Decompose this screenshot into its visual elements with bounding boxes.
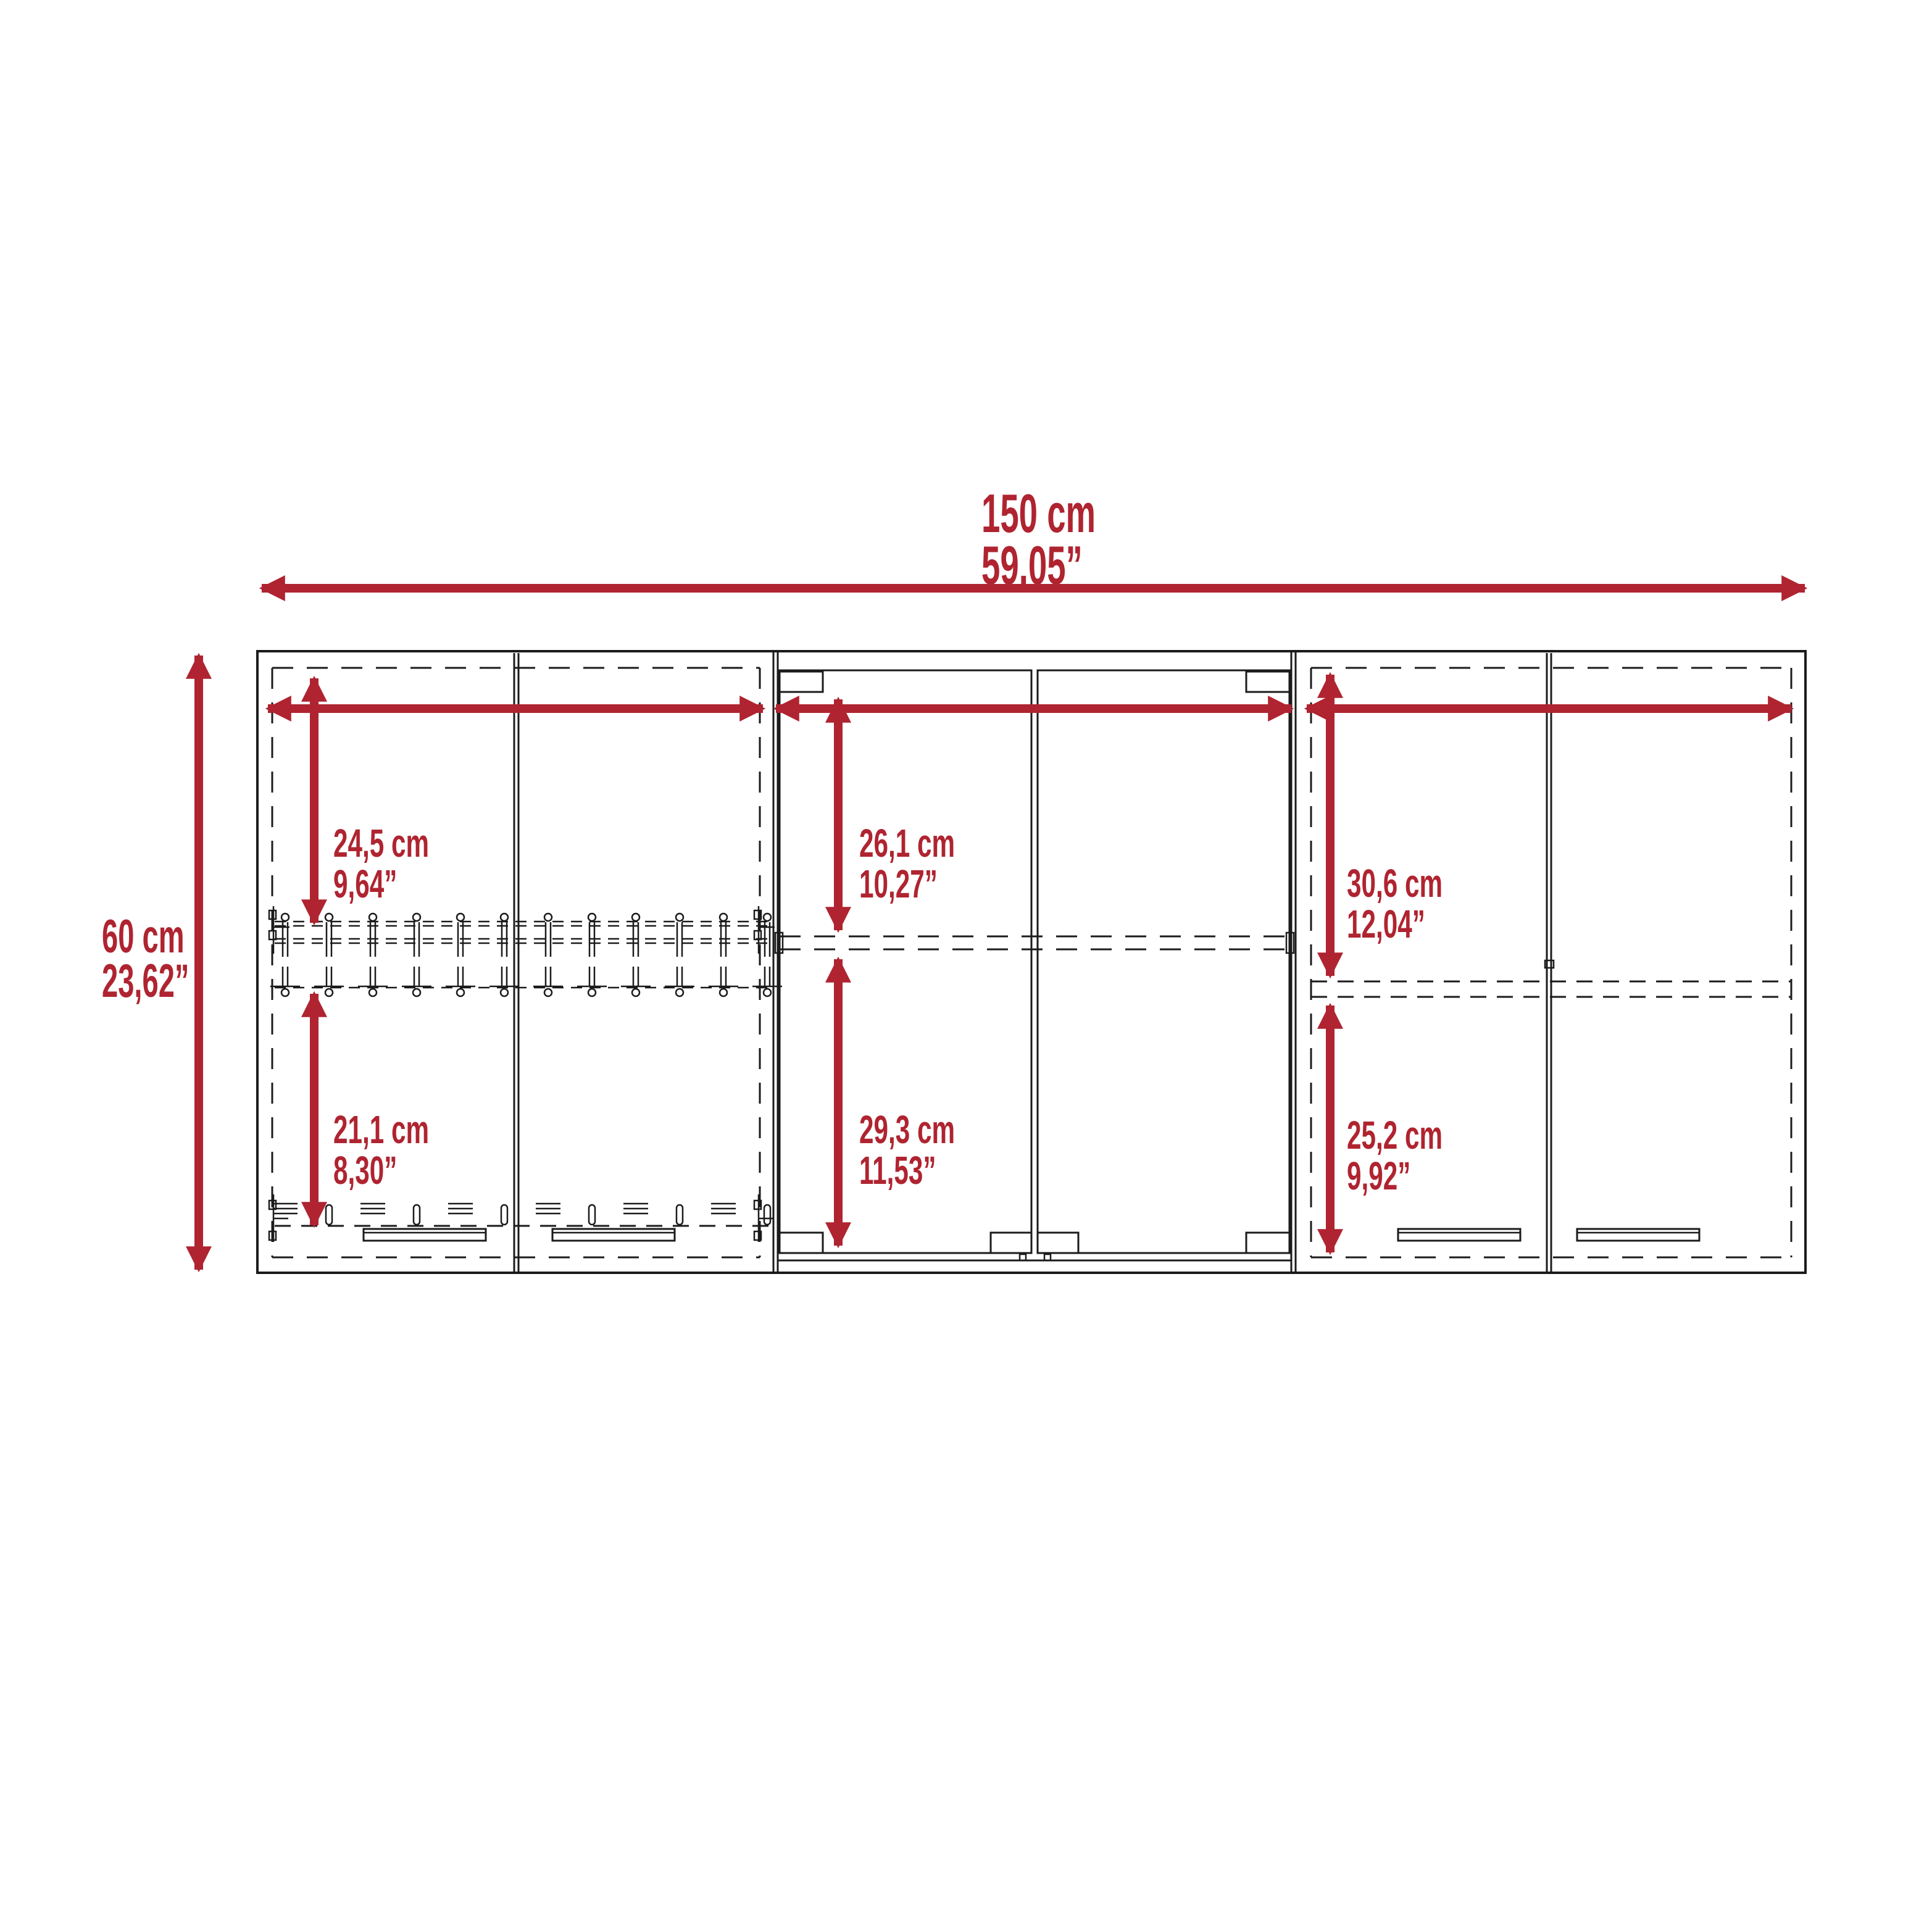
left-lower-opening-dimension: 21,1 cm 8,30” xyxy=(333,1109,429,1191)
overall-height-in: 23,62” xyxy=(102,959,189,1004)
glass-door-pair xyxy=(778,670,1291,1260)
middle-shelf xyxy=(775,933,1294,953)
right-upper-in: 12,04” xyxy=(1347,904,1443,944)
center-upper-in: 10,27” xyxy=(859,864,955,904)
center-lower-opening-dimension: 29,3 cm 11,53” xyxy=(859,1109,955,1191)
left-upper-in: 9,64” xyxy=(333,864,429,904)
right-lower-cm: 25,2 cm xyxy=(1347,1115,1443,1155)
dimension-arrows xyxy=(199,588,1805,1270)
right-upper-cm: 30,6 cm xyxy=(1347,863,1443,904)
right-lower-in: 9,92” xyxy=(1347,1155,1443,1196)
bottom-hardware-row xyxy=(269,1194,773,1242)
right-lower-opening-dimension: 25,2 cm 9,92” xyxy=(1347,1115,1443,1196)
overall-width-cm: 150 cm xyxy=(981,488,1096,539)
cabinet-line-drawing xyxy=(0,0,1932,1932)
dimension-drawing: 150 cm 59,05” 60 cm 23,62” 24,5 cm 9,64”… xyxy=(0,0,1932,1932)
left-lower-cm: 21,1 cm xyxy=(333,1109,429,1150)
center-upper-cm: 26,1 cm xyxy=(859,823,955,864)
overall-height-cm: 60 cm xyxy=(102,915,189,959)
overall-width-dimension: 150 cm 59,05” xyxy=(981,488,1096,591)
right-upper-opening-dimension: 30,6 cm 12,04” xyxy=(1347,863,1443,944)
center-upper-opening-dimension: 26,1 cm 10,27” xyxy=(859,823,955,904)
left-lower-in: 8,30” xyxy=(333,1150,429,1191)
plate-rack xyxy=(269,906,782,996)
center-lower-cm: 29,3 cm xyxy=(859,1109,955,1150)
door-handle xyxy=(1398,1229,1699,1241)
center-lower-in: 11,53” xyxy=(859,1150,955,1191)
left-upper-opening-dimension: 24,5 cm 9,64” xyxy=(333,823,429,904)
left-upper-cm: 24,5 cm xyxy=(333,823,429,864)
overall-width-in: 59,05” xyxy=(981,539,1096,591)
overall-height-dimension: 60 cm 23,62” xyxy=(102,915,189,1004)
